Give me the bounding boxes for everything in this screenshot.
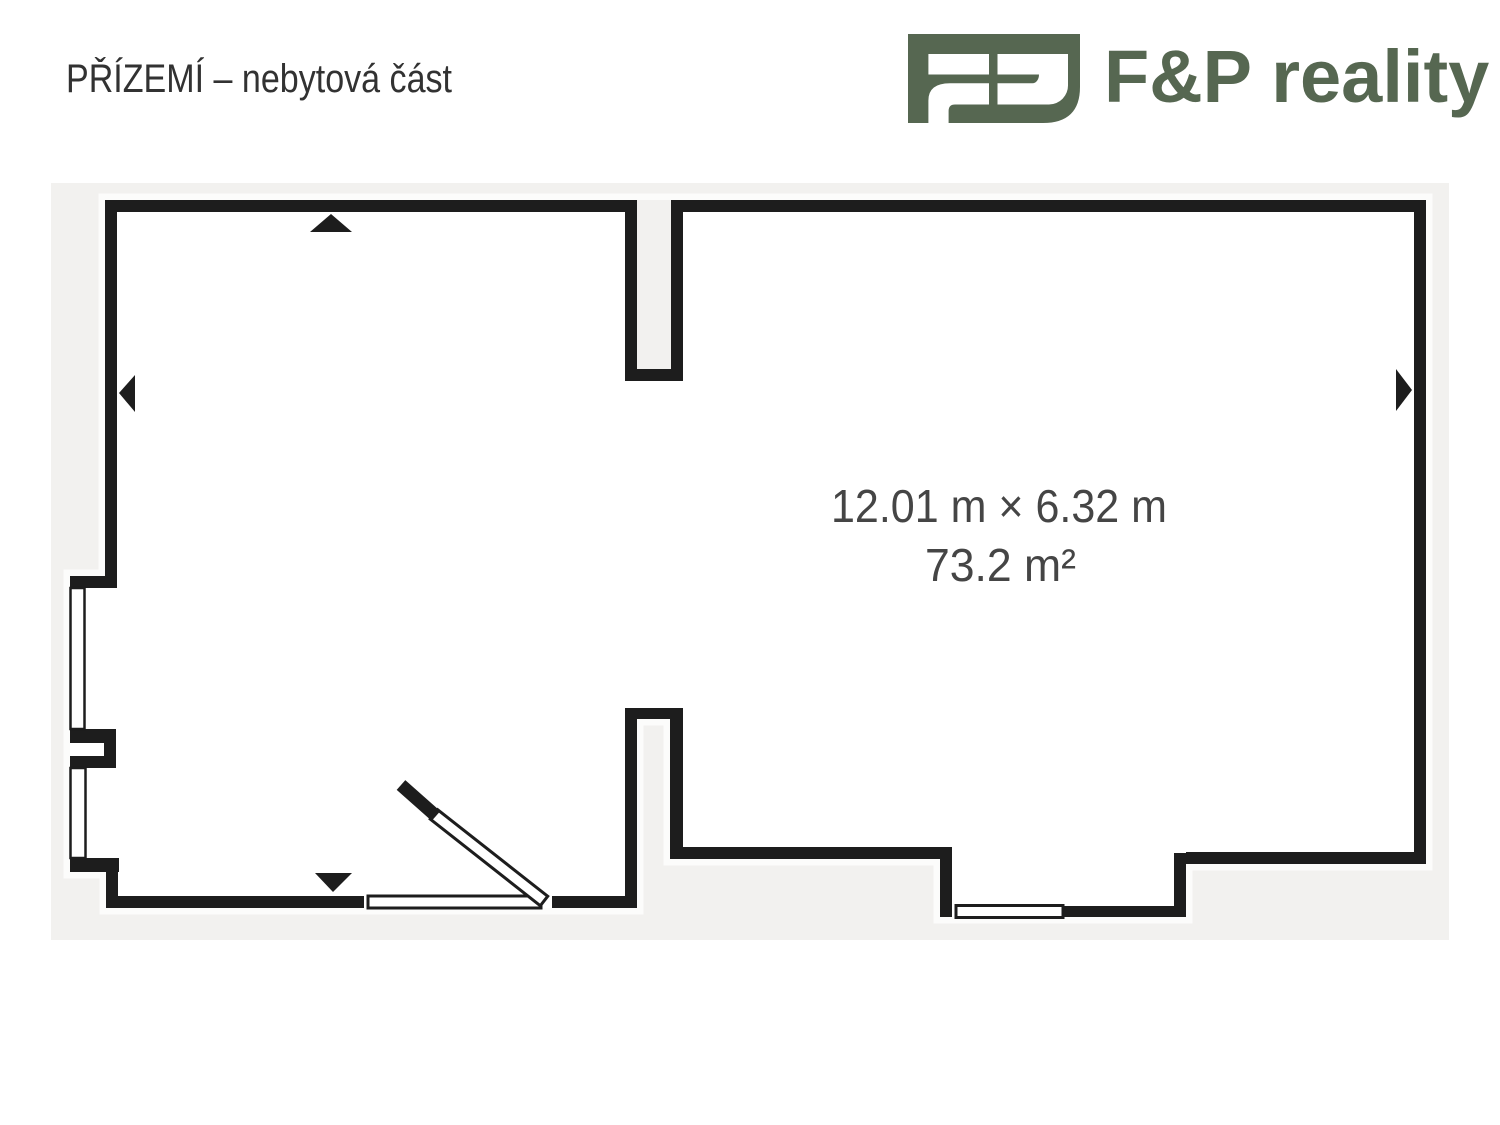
svg-text:73.2 m²: 73.2 m²	[925, 539, 1076, 591]
svg-text:PŘÍZEMÍ – nebytová část: PŘÍZEMÍ – nebytová část	[66, 56, 452, 101]
svg-text:F&P reality: F&P reality	[1104, 35, 1489, 118]
svg-text:12.01 m × 6.32 m: 12.01 m × 6.32 m	[831, 480, 1167, 532]
